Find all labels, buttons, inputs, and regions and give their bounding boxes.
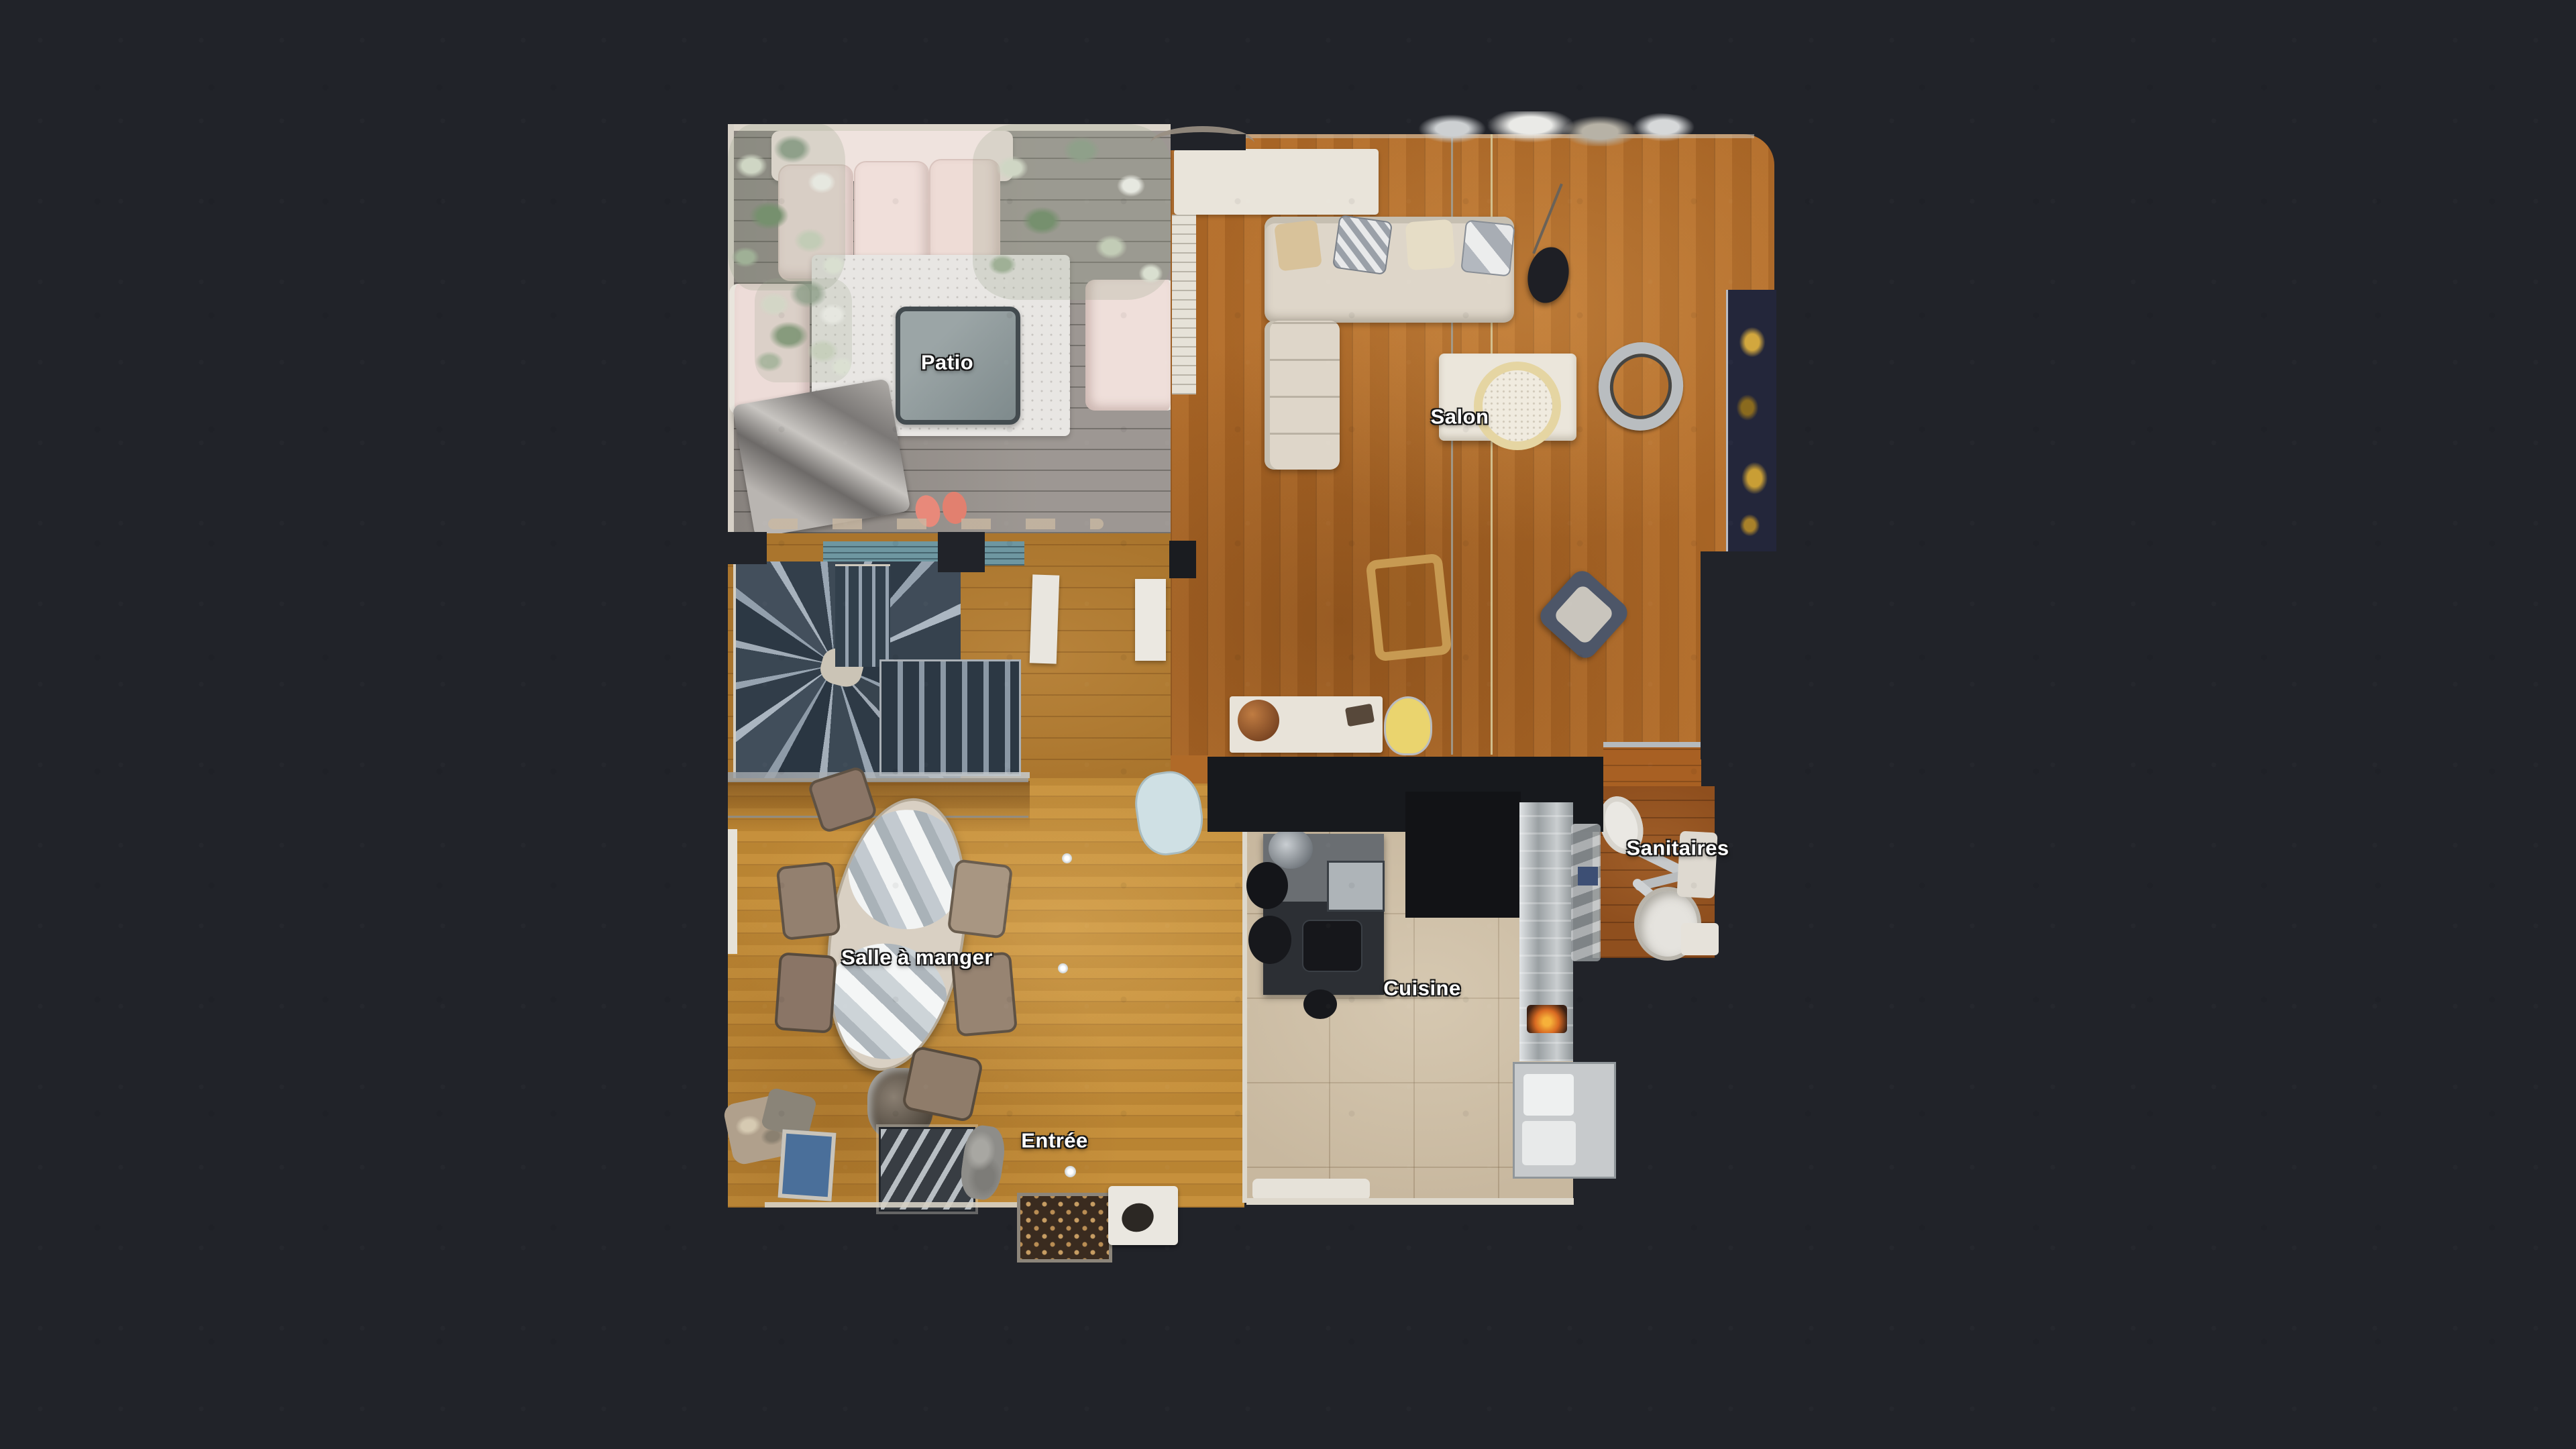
salon-yellow-chair — [1384, 696, 1432, 755]
dining-chair — [774, 952, 837, 1034]
kitchen-black-cabinets — [1405, 792, 1521, 918]
room-patio[interactable] — [728, 124, 1171, 533]
dining-chair — [775, 861, 841, 941]
entrance-bench — [1108, 1186, 1178, 1245]
patio-edge-debris — [768, 519, 1104, 529]
salon-globe — [1238, 700, 1279, 741]
kitchen-stool — [1246, 862, 1288, 909]
salon-lamp-arm — [1532, 183, 1563, 254]
dining-wall-bottom — [765, 1202, 1033, 1207]
dining-radiator — [728, 829, 737, 954]
island-appliance — [1269, 828, 1313, 869]
island-dark-object — [1302, 920, 1362, 972]
salon-bar-cabinet — [1726, 290, 1776, 551]
mesh-debris-top — [1409, 111, 1699, 146]
sofa-pillow — [1274, 219, 1322, 271]
island-sink — [1327, 861, 1385, 912]
room-label-salle-a-manger[interactable]: Salle à manger — [841, 947, 993, 968]
ceiling-light — [1058, 963, 1068, 973]
dining-table — [809, 788, 985, 1081]
salon-sofa-chaise — [1265, 321, 1340, 470]
ceiling-light — [1062, 853, 1072, 863]
room-label-patio[interactable]: Patio — [921, 352, 973, 373]
salon-mask-lowerright — [1701, 551, 1776, 759]
salon-sofa — [1265, 217, 1514, 323]
salon-radiator — [1172, 215, 1196, 394]
sink-basin — [1522, 1121, 1576, 1165]
kitchen-wall-bottom — [1246, 1198, 1574, 1205]
salon-stool-dark — [1523, 244, 1574, 307]
dining-threshold — [728, 778, 1028, 782]
ceiling-light — [1065, 1166, 1076, 1177]
kitchen-stool — [1303, 989, 1337, 1019]
patio-plants-left — [755, 278, 852, 382]
dining-chair — [947, 859, 1014, 939]
kitchen-stool — [1248, 916, 1291, 964]
washer-debris — [1571, 824, 1601, 961]
armchair-cushion — [1552, 583, 1615, 645]
floorplan-viewport[interactable]: PatioSalonSalle à mangerCuisineEntréeSan… — [0, 0, 2576, 1449]
room-label-salon[interactable]: Salon — [1431, 407, 1489, 427]
sink-basin — [1523, 1074, 1574, 1116]
sofa-pillow — [1405, 219, 1456, 271]
stair-flight-upper — [835, 564, 890, 667]
oven-fire-glow — [1527, 1005, 1567, 1033]
stair-flight-lower — [879, 659, 1021, 776]
sofa-pillow — [1460, 219, 1515, 276]
patio-plants-topright — [973, 124, 1171, 300]
room-sanitaires[interactable] — [1593, 786, 1715, 958]
patio-lounge-chair — [732, 378, 910, 538]
kitchen-sink-unit — [1513, 1062, 1616, 1179]
corridor-threshold — [1603, 742, 1701, 747]
room-label-cuisine[interactable]: Cuisine — [1383, 978, 1460, 999]
clutter-artwork — [778, 1129, 837, 1201]
room-salon[interactable] — [1171, 134, 1774, 758]
mesh-notch — [1169, 541, 1196, 578]
entrance-doormat — [1017, 1193, 1112, 1263]
mesh-notch — [938, 532, 985, 572]
patio-plants-topleft — [728, 124, 845, 290]
room-label-entree[interactable]: Entrée — [1021, 1130, 1087, 1151]
salon-armchair — [1536, 566, 1632, 663]
bench-dark-object — [1118, 1199, 1157, 1236]
hall-door — [1030, 574, 1060, 663]
corner-clutter — [728, 1092, 827, 1205]
hall-door — [1135, 579, 1166, 661]
salon-ring-sculpture — [1591, 334, 1692, 438]
salon-wood-chair — [1365, 553, 1452, 661]
kitchen-bottom-cabinets — [1252, 1179, 1370, 1200]
salon-mask-topleft — [1171, 134, 1246, 150]
bathroom-cabinet — [1681, 923, 1719, 955]
blue-window-bit — [1578, 867, 1598, 885]
kitchen-island — [1263, 834, 1384, 995]
mesh-notch — [728, 532, 767, 564]
salon-sideboard-decor — [1207, 158, 1320, 206]
room-label-sanitaires[interactable]: Sanitaires — [1626, 838, 1729, 859]
sofa-pillow — [1332, 215, 1393, 275]
